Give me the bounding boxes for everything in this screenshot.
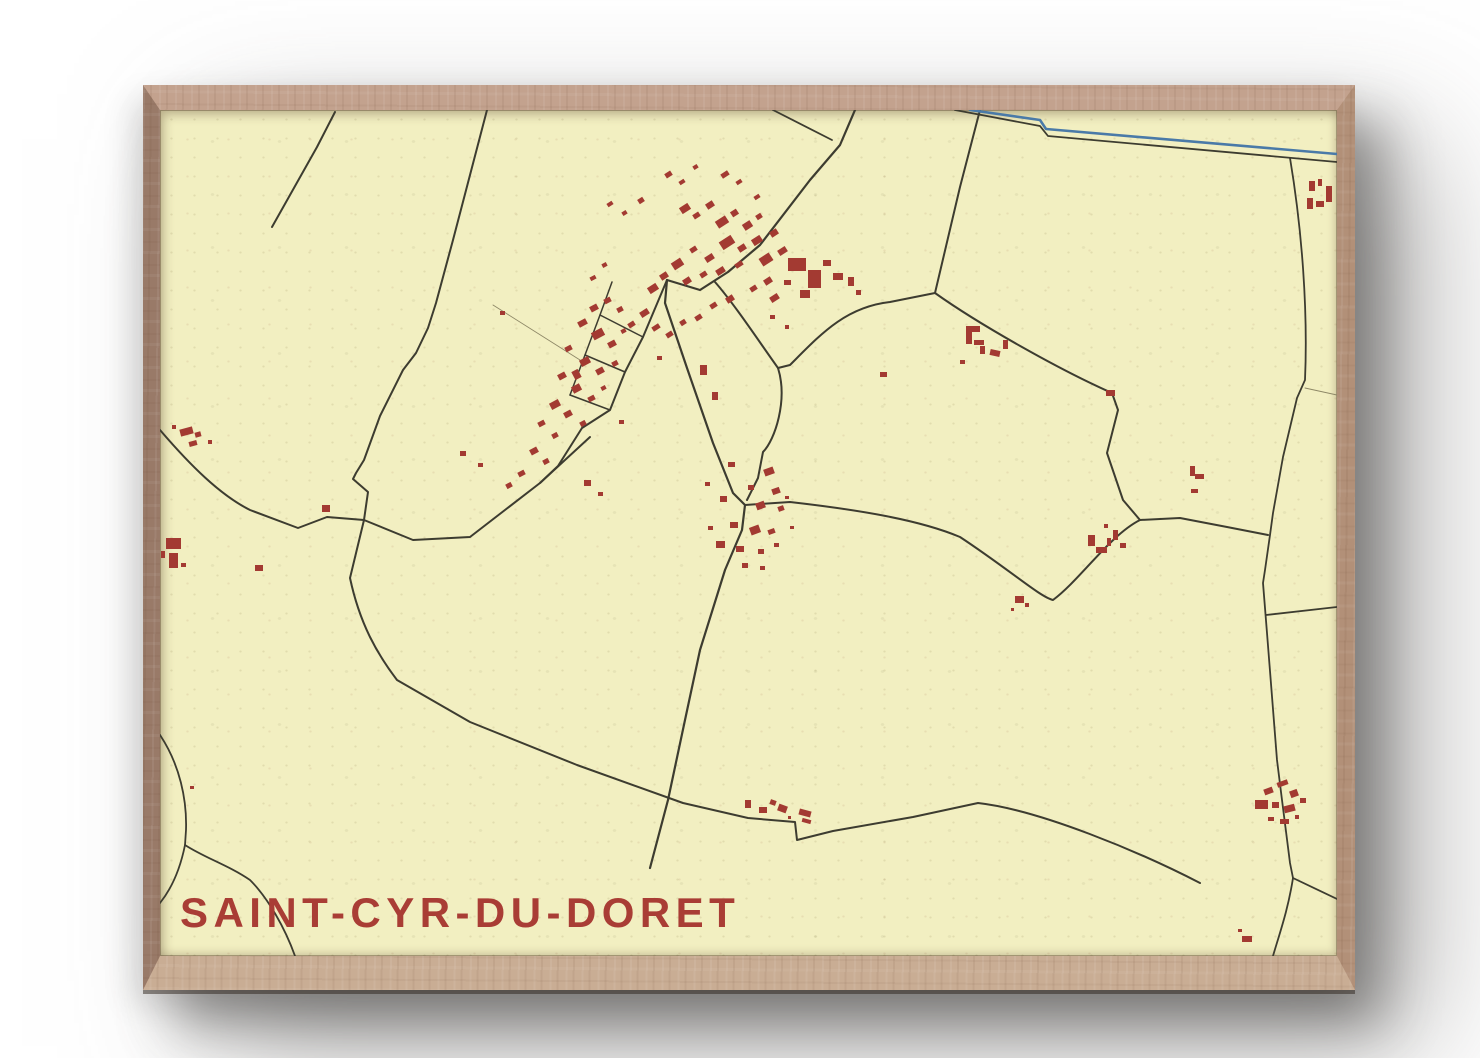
building-footprint [704, 253, 715, 263]
building-footprint [692, 211, 701, 219]
building-footprint [763, 467, 775, 477]
building-footprint [1263, 787, 1274, 796]
building-footprint [788, 258, 806, 271]
building-footprint [708, 526, 713, 530]
building-footprint [774, 543, 779, 547]
building-footprint [1106, 390, 1115, 396]
building-footprint [591, 328, 605, 341]
photo-backdrop: SAINT-CYR-DU-DORET [0, 0, 1480, 1058]
building-footprint [166, 538, 181, 549]
building-footprint [1272, 802, 1279, 808]
building-footprint [758, 549, 764, 554]
building-footprint [1300, 798, 1306, 803]
building-footprint [1326, 186, 1332, 202]
building-footprint [1307, 198, 1313, 209]
building-footprint [1276, 779, 1288, 787]
building-footprint [678, 179, 685, 186]
road-north-exit [935, 110, 980, 293]
building-footprint [705, 482, 710, 486]
map-paper: SAINT-CYR-DU-DORET [160, 110, 1337, 956]
building-footprint [880, 372, 887, 377]
building-footprint [460, 451, 466, 456]
road-canalside [955, 110, 1337, 162]
building-footprint [777, 505, 784, 512]
building-footprint [785, 496, 789, 499]
building-footprint [1003, 340, 1008, 349]
building-footprint [616, 306, 624, 313]
building-footprint [181, 563, 186, 567]
building-footprint [1238, 929, 1242, 932]
building-footprint [542, 458, 550, 465]
building-footprint [589, 275, 596, 281]
building-footprint [179, 426, 193, 436]
building-footprint [664, 170, 673, 178]
road-west-horizontal [160, 430, 590, 540]
building-footprint [709, 301, 718, 309]
building-footprint [1107, 538, 1111, 546]
building-footprint [759, 807, 767, 813]
building-footprint [577, 318, 588, 328]
road-loop-arc [778, 293, 1140, 520]
building-footprint [478, 463, 483, 467]
building-footprint [769, 293, 780, 303]
building-footprint [1015, 596, 1024, 603]
building-footprint [808, 270, 821, 288]
building-footprint [639, 308, 650, 318]
building-footprint [606, 201, 613, 208]
building-footprint [823, 260, 831, 266]
building-footprint [785, 325, 789, 329]
building-footprint [759, 252, 774, 266]
building-footprint [1255, 800, 1268, 809]
building-footprint [694, 313, 703, 321]
building-footprint [802, 818, 812, 824]
building-footprint [161, 551, 165, 558]
building-footprint [557, 371, 567, 380]
building-footprint [742, 220, 753, 231]
building-footprint [800, 290, 810, 298]
building-footprint [517, 470, 526, 478]
building-footprint [1113, 530, 1118, 540]
river-canal [970, 110, 1337, 154]
building-footprint [1096, 547, 1107, 553]
building-footprint [728, 462, 735, 467]
path-ne-spur [1305, 388, 1337, 395]
building-footprint [551, 432, 559, 439]
building-footprint [856, 290, 861, 295]
building-footprint [1242, 936, 1252, 942]
building-footprint [657, 356, 662, 360]
building-footprint [1309, 181, 1315, 191]
building-footprint [589, 303, 599, 312]
building-footprint [1104, 524, 1108, 528]
building-footprint [742, 563, 748, 568]
building-footprint [745, 800, 751, 808]
building-footprint [1289, 789, 1299, 798]
building-footprint [1283, 804, 1295, 814]
building-footprint [529, 446, 539, 455]
building-footprint [505, 482, 513, 489]
building-footprint [600, 385, 606, 391]
building-footprint [1011, 608, 1014, 611]
building-footprint [715, 215, 729, 228]
building-footprint [767, 528, 775, 535]
building-footprint [966, 326, 980, 332]
building-footprint [755, 501, 766, 511]
poster-frame: SAINT-CYR-DU-DORET [143, 85, 1355, 990]
building-footprint [598, 492, 603, 496]
building-footprint [763, 276, 773, 285]
building-footprint [679, 203, 691, 214]
building-footprint [169, 553, 178, 568]
building-footprint [679, 319, 687, 326]
building-footprint [1295, 815, 1299, 819]
building-footprint [719, 235, 736, 250]
building-footprint [571, 369, 581, 380]
road-bottom-diagonal [350, 520, 1200, 883]
building-footprint [699, 270, 708, 278]
building-footprint [788, 816, 791, 819]
building-footprint [1195, 474, 1204, 479]
building-footprint [716, 541, 725, 548]
building-footprint [749, 525, 761, 536]
building-footprint [730, 209, 739, 218]
street-grid-rung-1 [600, 315, 643, 337]
building-footprint [500, 311, 505, 315]
building-footprint [692, 164, 698, 170]
building-footprint [769, 799, 776, 806]
building-footprint [571, 383, 582, 393]
building-footprint [255, 565, 263, 571]
building-footprint [190, 786, 194, 789]
map-title: SAINT-CYR-DU-DORET [180, 889, 740, 937]
building-footprint [960, 360, 965, 364]
building-footprint [647, 283, 659, 294]
building-footprint [735, 179, 742, 186]
building-footprint [188, 440, 197, 447]
building-footprint [784, 280, 791, 285]
building-footprint [1268, 817, 1274, 821]
building-footprint [1025, 603, 1029, 607]
road-se-exit [1266, 607, 1337, 615]
road-nw-deadend [272, 112, 335, 227]
building-footprint [833, 273, 843, 280]
road-south [650, 280, 745, 868]
road-village-branch-nw [773, 110, 832, 140]
building-footprint [637, 197, 645, 204]
map-buildings-layer [161, 164, 1332, 942]
street-grid-rung-2 [585, 355, 625, 372]
building-footprint [1190, 466, 1195, 476]
road-right-vertical [1263, 158, 1306, 956]
building-footprint [619, 420, 624, 424]
building-footprint [621, 210, 627, 216]
building-footprint [1318, 179, 1322, 186]
building-footprint [771, 487, 781, 495]
building-footprint [989, 349, 1000, 357]
building-footprint [700, 365, 707, 375]
building-footprint [1316, 201, 1324, 207]
building-footprint [601, 262, 607, 268]
building-footprint [665, 330, 674, 338]
building-footprint [651, 323, 660, 332]
building-footprint [777, 246, 788, 256]
building-footprint [730, 522, 738, 528]
building-footprint [737, 243, 747, 252]
building-footprint [584, 480, 591, 486]
building-footprint [172, 425, 176, 429]
building-footprint [607, 339, 617, 348]
map-roads-layer [160, 110, 1337, 956]
building-footprint [736, 546, 744, 552]
building-footprint [974, 340, 984, 345]
building-footprint [770, 315, 775, 319]
building-footprint [705, 200, 715, 209]
building-footprint [760, 566, 765, 570]
road-west-long [353, 110, 487, 520]
building-footprint [208, 440, 212, 444]
building-footprint [798, 809, 811, 818]
building-footprint [748, 485, 754, 490]
building-footprint [627, 320, 636, 328]
building-footprint [755, 213, 763, 220]
building-footprint [712, 392, 718, 400]
building-footprint [720, 496, 727, 502]
building-footprint [1280, 819, 1289, 824]
building-footprint [749, 284, 758, 292]
building-footprint [720, 170, 729, 179]
building-footprint [194, 431, 201, 437]
building-footprint [689, 245, 698, 253]
building-footprint [563, 409, 573, 418]
building-footprint [595, 366, 605, 375]
building-footprint [790, 526, 794, 529]
building-footprint [537, 420, 546, 428]
building-footprint [966, 332, 972, 344]
building-footprint [671, 258, 685, 271]
building-footprint [753, 194, 760, 201]
road-br-east [1293, 878, 1337, 899]
building-footprint [980, 346, 985, 354]
building-footprint [848, 277, 854, 286]
building-footprint [322, 505, 330, 512]
building-footprint [777, 804, 788, 814]
building-footprint [1088, 535, 1095, 546]
road-east-west-mid [745, 502, 1268, 600]
road-left-edge [160, 735, 186, 903]
building-footprint [549, 399, 561, 410]
building-footprint [1120, 543, 1126, 548]
map-canvas [160, 110, 1337, 956]
building-footprint [1191, 489, 1198, 493]
